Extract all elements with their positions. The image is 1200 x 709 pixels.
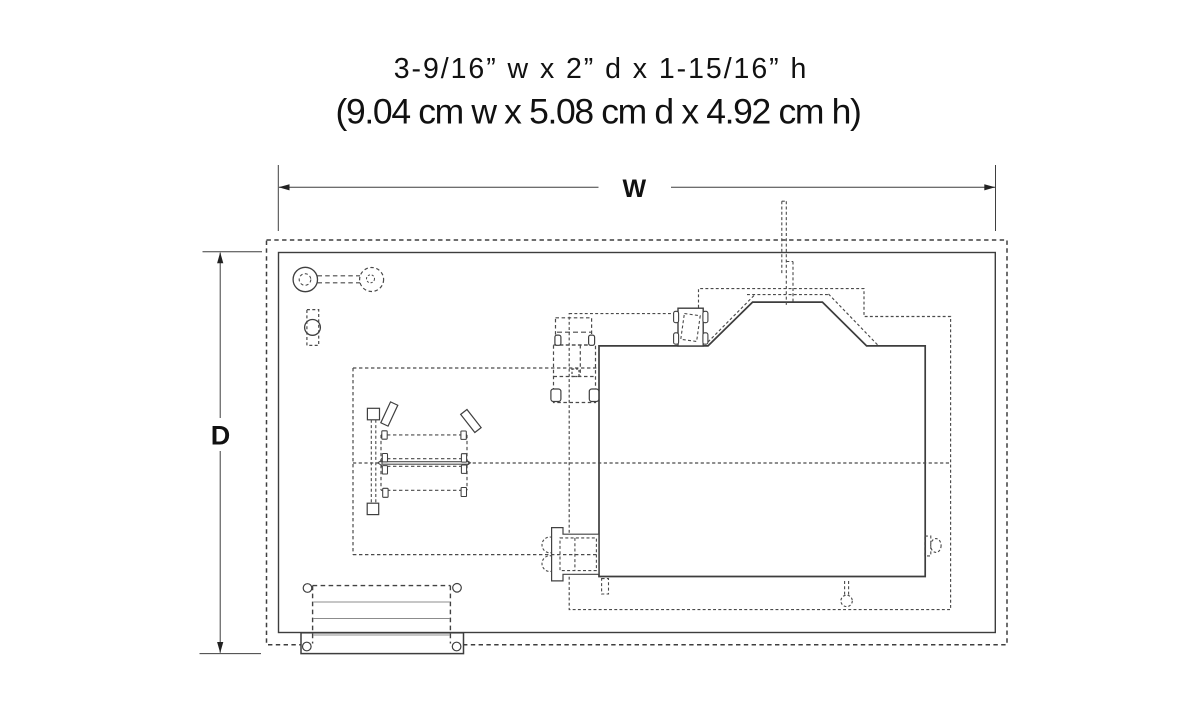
svg-text:(9.04 cm w x 5.08 cm d x 4.92: (9.04 cm w x 5.08 cm d x 4.92 cm h): [336, 92, 861, 132]
svg-text:D: D: [211, 420, 231, 450]
svg-text:3-9/16” w x 2” d x 1-15/16” h: 3-9/16” w x 2” d x 1-15/16” h: [394, 53, 809, 85]
svg-text:W: W: [622, 175, 646, 203]
